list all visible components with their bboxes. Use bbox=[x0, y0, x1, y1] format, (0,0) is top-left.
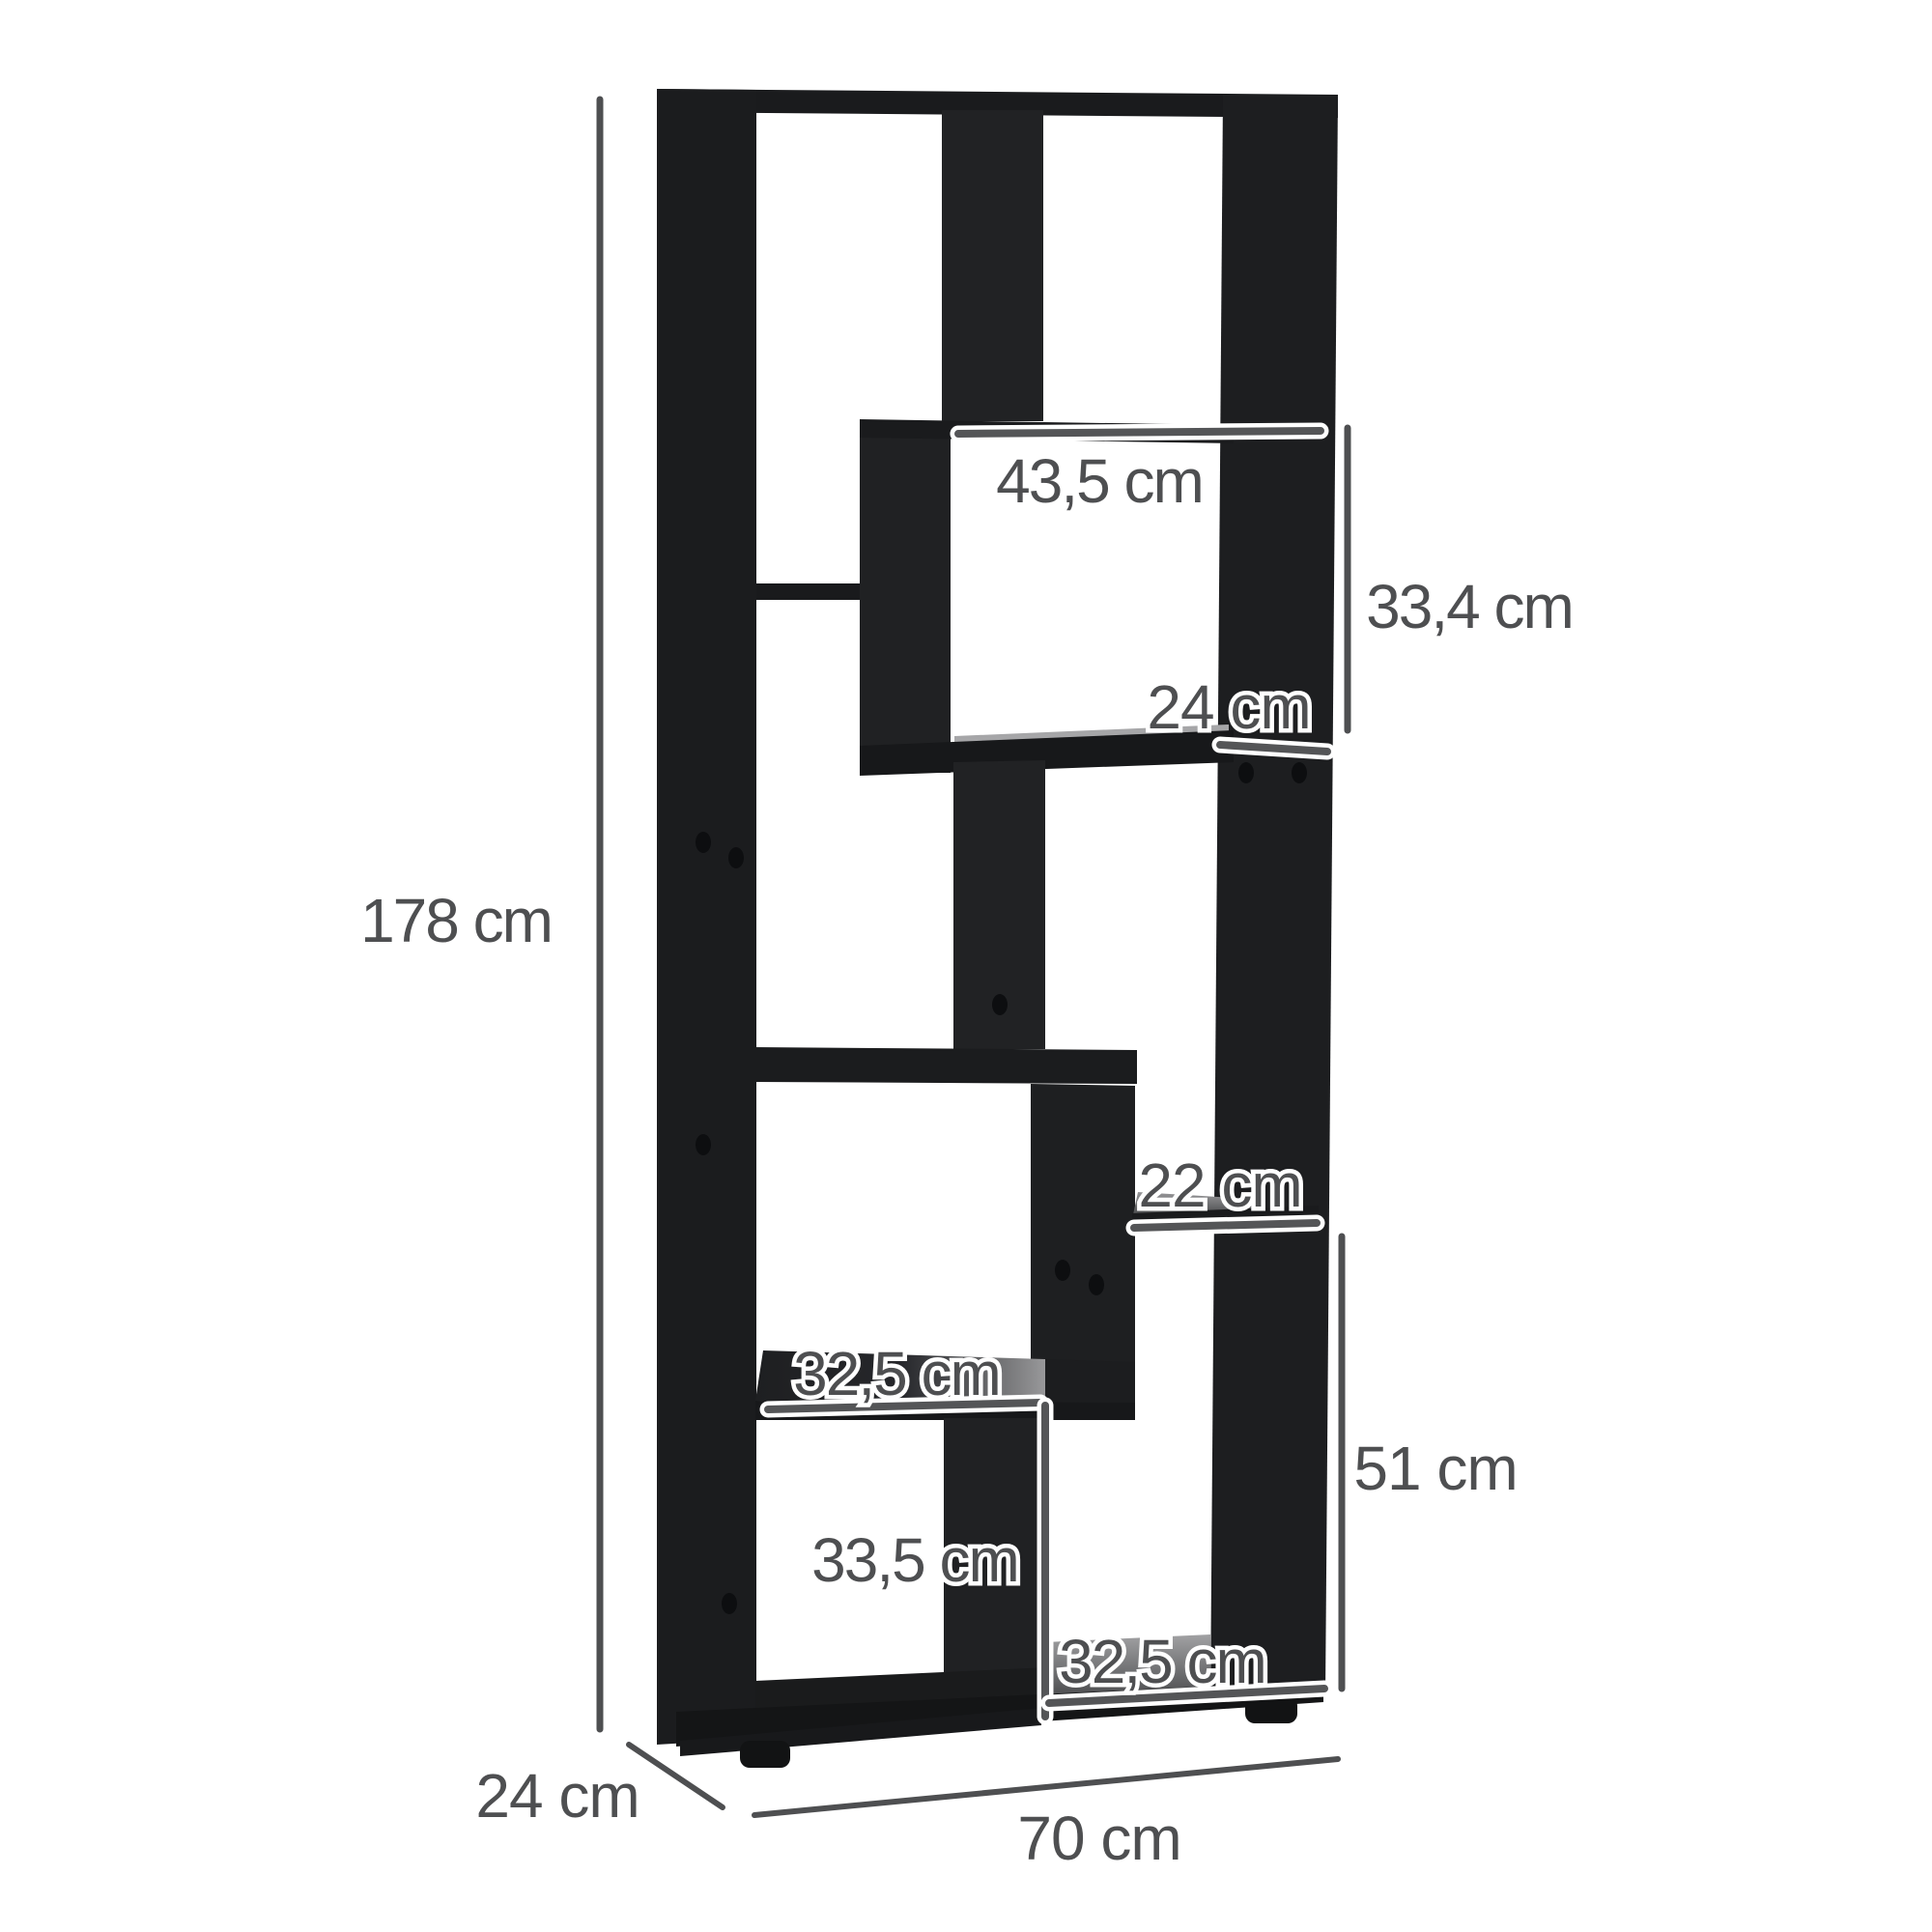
svg-text:24 cm: 24 cm bbox=[1147, 672, 1310, 742]
svg-text:32,5 cm: 32,5 cm bbox=[793, 1339, 1000, 1408]
svg-text:51 cm: 51 cm bbox=[1353, 1434, 1517, 1503]
svg-text:43,5 cm: 43,5 cm bbox=[996, 446, 1203, 516]
svg-text:32,5 cm: 32,5 cm bbox=[1059, 1627, 1265, 1696]
svg-text:70 cm: 70 cm bbox=[1017, 1804, 1180, 1873]
svg-text:24 cm: 24 cm bbox=[475, 1761, 639, 1831]
svg-text:178 cm: 178 cm bbox=[360, 886, 552, 955]
svg-text:33,5 cm: 33,5 cm bbox=[811, 1525, 1018, 1595]
svg-text:22 cm: 22 cm bbox=[1138, 1151, 1301, 1220]
svg-text:33,4 cm: 33,4 cm bbox=[1366, 572, 1573, 641]
